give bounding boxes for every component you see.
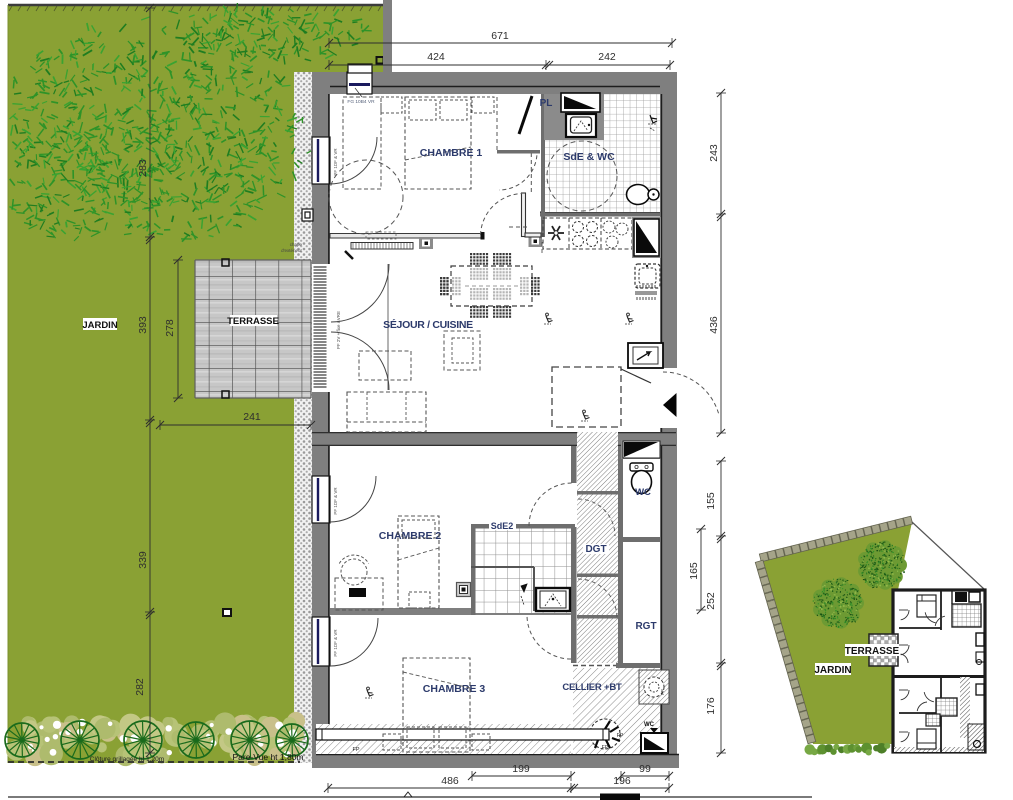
svg-text:278: 278 [164, 319, 176, 337]
svg-text:339: 339 [137, 551, 149, 569]
svg-text:chape: chape [290, 242, 303, 247]
svg-text:486: 486 [441, 775, 459, 787]
svg-text:FP: FP [660, 689, 665, 695]
svg-text:RGT: RGT [635, 621, 656, 632]
svg-text:199: 199 [512, 763, 530, 775]
svg-text:WC: WC [635, 487, 651, 498]
svg-text:Pare-Vue ht 1,80m: Pare-Vue ht 1,80m [232, 752, 303, 762]
svg-text:165: 165 [688, 562, 700, 580]
svg-text:424: 424 [427, 51, 445, 63]
svg-text:282: 282 [134, 678, 146, 696]
svg-text:FG 10B4 VR: FG 10B4 VR [347, 99, 375, 105]
svg-text:JARDIN: JARDIN [814, 665, 851, 676]
svg-text:PF 2V + fixe &VRE: PF 2V + fixe &VRE [336, 311, 341, 349]
svg-text:393: 393 [137, 316, 149, 334]
svg-text:99: 99 [639, 763, 651, 775]
svg-text:PL: PL [540, 98, 553, 109]
svg-text:FP: FP [617, 733, 624, 739]
svg-text:WC: WC [644, 722, 655, 728]
svg-text:Clôture grillagée ht 1,20m: Clôture grillagée ht 1,20m [90, 756, 164, 763]
svg-text:PF 1DF & VR: PF 1DF & VR [333, 487, 338, 515]
svg-text:TERRASSE: TERRASSE [845, 646, 900, 657]
svg-text:CHAMBRE 2: CHAMBRE 2 [379, 530, 442, 542]
svg-text:SÉJOUR / CUISINE: SÉJOUR / CUISINE [383, 318, 473, 331]
svg-text:FP: FP [352, 747, 359, 753]
svg-text:SdE & WC: SdE & WC [563, 151, 615, 163]
svg-text:SdE2: SdE2 [491, 521, 514, 531]
svg-text:176: 176 [705, 697, 717, 715]
svg-text:DGT: DGT [585, 544, 606, 555]
svg-text:671: 671 [491, 30, 509, 42]
svg-text:d'extérieur: d'extérieur [281, 248, 302, 253]
svg-text:242: 242 [598, 51, 616, 63]
svg-text:CHAMBRE 1: CHAMBRE 1 [420, 147, 483, 159]
svg-text:155: 155 [705, 492, 717, 510]
svg-text:243: 243 [708, 144, 720, 162]
svg-text:TERRASSE: TERRASSE [227, 316, 279, 327]
svg-text:196: 196 [613, 775, 631, 787]
svg-text:PF 1DF & VR: PF 1DF & VR [333, 148, 338, 176]
svg-text:436: 436 [708, 316, 720, 334]
svg-text:CELLIER +BT: CELLIER +BT [562, 682, 622, 693]
svg-text:FP: FP [602, 745, 609, 751]
svg-text:CHAMBRE 3: CHAMBRE 3 [423, 683, 486, 695]
svg-text:241: 241 [243, 411, 261, 423]
svg-text:283: 283 [137, 159, 149, 177]
svg-text:JARDIN: JARDIN [82, 320, 118, 331]
svg-text:PF 1DF & VR: PF 1DF & VR [333, 629, 338, 657]
svg-text:252: 252 [705, 592, 717, 610]
